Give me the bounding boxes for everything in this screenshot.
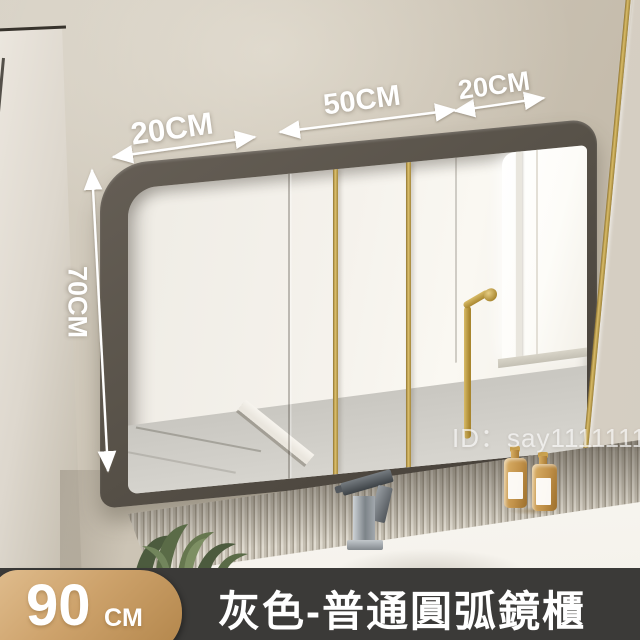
caption-banner: 90 CM 灰色-普通圓弧鏡櫃 bbox=[0, 568, 640, 640]
reflected-pipe-flange bbox=[484, 288, 497, 302]
product-photo-bathroom-mirror-cabinet: ID：say11111111 20CM 50CM 20CM 70CM 90 bbox=[0, 0, 640, 640]
product-variant-title: 灰色-普通圓弧鏡櫃 bbox=[192, 578, 612, 639]
chrome-faucet bbox=[340, 466, 406, 554]
faucet-body bbox=[353, 496, 375, 544]
faucet-base bbox=[347, 540, 383, 550]
size-badge-number: 90 bbox=[26, 572, 91, 639]
gold-door-trim bbox=[333, 169, 338, 474]
dimension-label-height: 70CM bbox=[62, 266, 93, 338]
mirror-door-seam bbox=[288, 174, 290, 479]
gold-door-trim bbox=[406, 162, 411, 467]
reflected-wall-corner bbox=[455, 158, 457, 363]
size-badge: 90 CM bbox=[0, 570, 182, 640]
seller-id-watermark: ID：say11111111 bbox=[452, 418, 640, 455]
reflected-window bbox=[502, 145, 587, 359]
amber-bottle bbox=[504, 446, 527, 508]
green-plant bbox=[126, 502, 252, 572]
amber-bottle bbox=[532, 452, 557, 510]
window-frame-bar bbox=[536, 150, 538, 356]
bottle-label bbox=[536, 478, 551, 505]
bottle-label bbox=[508, 472, 523, 499]
size-badge-unit: CM bbox=[104, 604, 143, 633]
window-frame-bar bbox=[516, 151, 522, 358]
